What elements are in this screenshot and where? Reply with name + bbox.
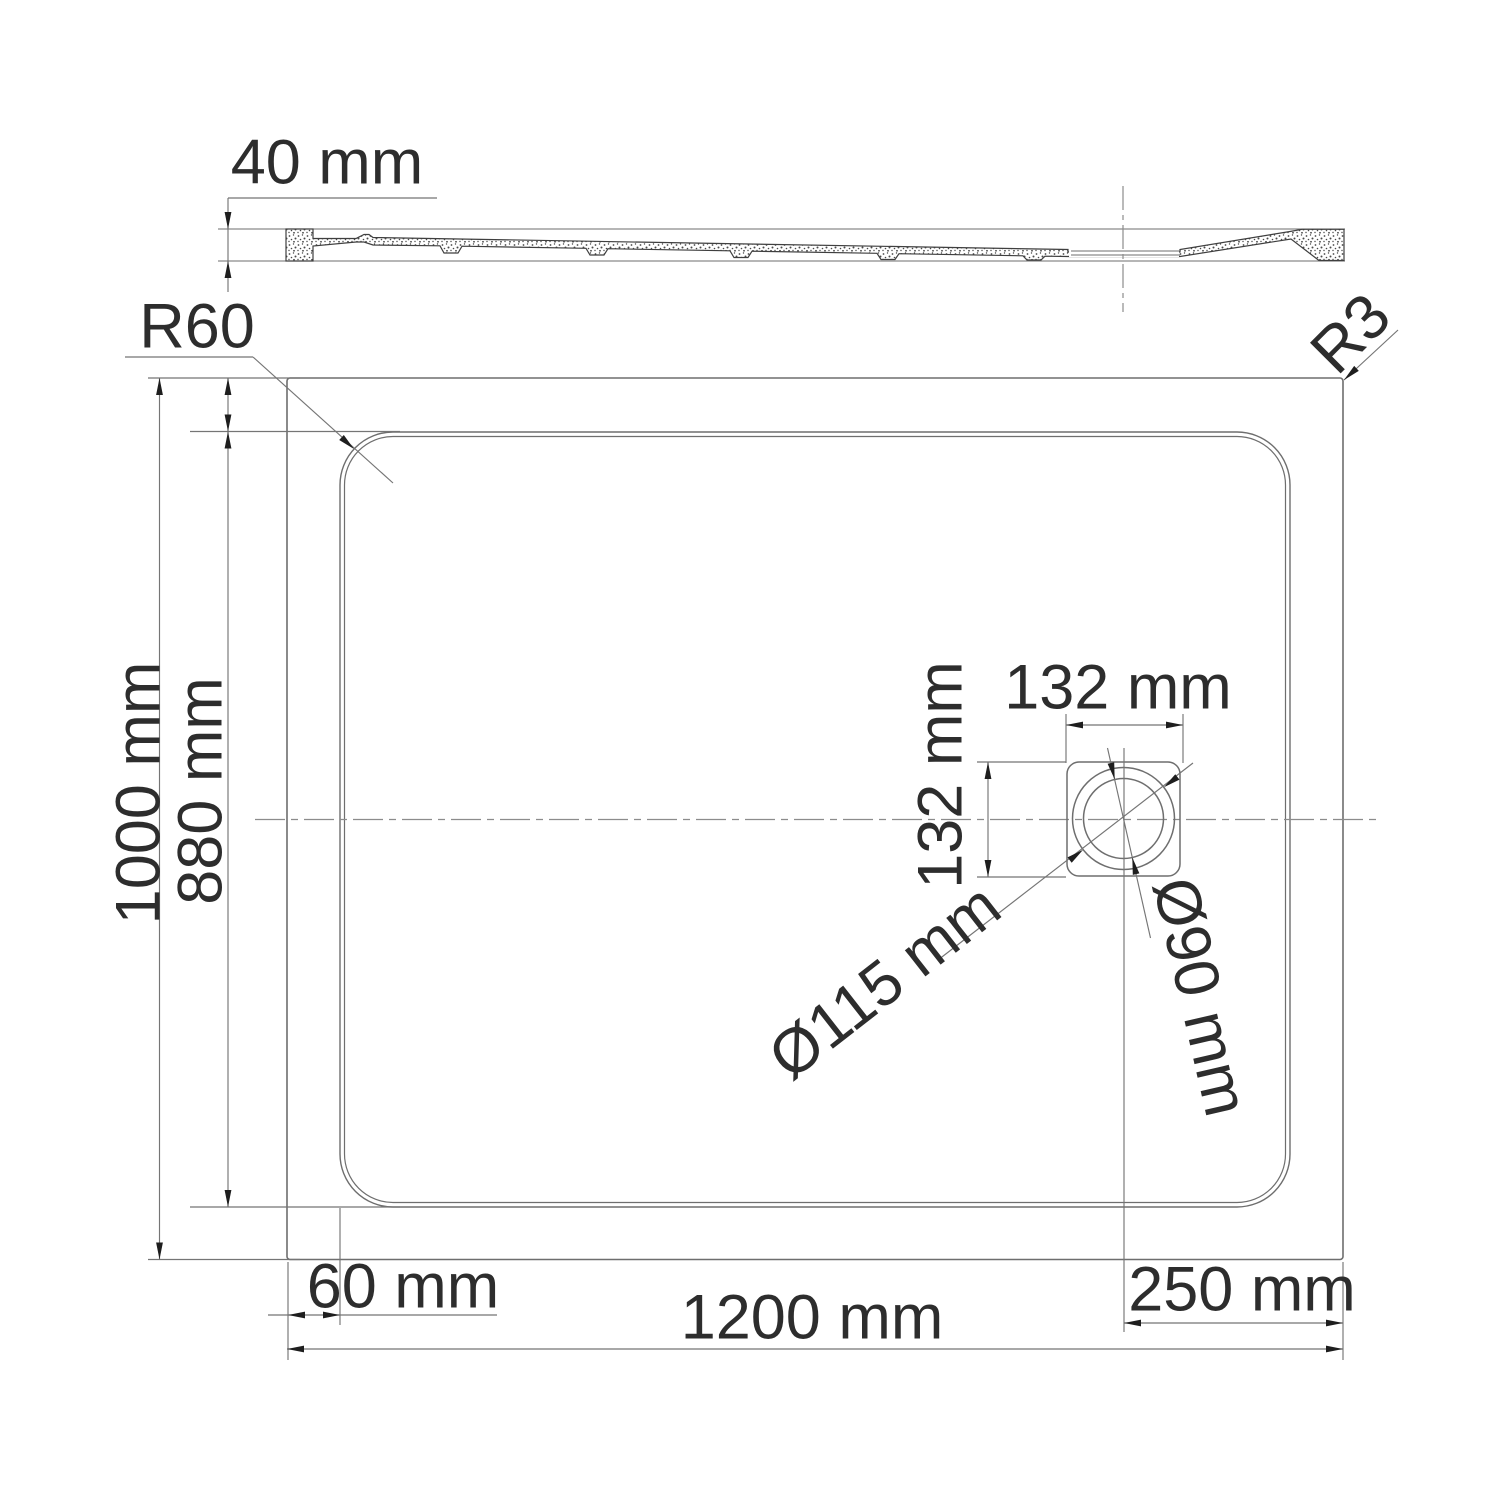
dim-drain-box-height-label: 132 mm bbox=[910, 661, 973, 889]
radius-inner-label: R60 bbox=[139, 296, 255, 359]
dim-drain-offset-label: 250 mm bbox=[1128, 1259, 1356, 1322]
dim-edge-offset-label: 60 mm bbox=[307, 1256, 500, 1319]
dim-thickness-label: 40 mm bbox=[231, 132, 424, 195]
plan-view bbox=[255, 378, 1378, 1332]
dim-drain-box-width-label: 132 mm bbox=[1004, 657, 1232, 720]
dimension-lines bbox=[125, 330, 1398, 1360]
section-view bbox=[218, 186, 1345, 312]
dim-inner-height-label: 880 mm bbox=[170, 677, 233, 905]
technical-drawing-canvas: 40 mm R60 R3 1000 mm 880 mm 132 mm 132 m… bbox=[0, 0, 1500, 1500]
tray-outer-outline bbox=[287, 378, 1343, 1260]
dim-outer-width-label: 1200 mm bbox=[681, 1287, 944, 1350]
dim-outer-height-label: 1000 mm bbox=[108, 662, 171, 925]
